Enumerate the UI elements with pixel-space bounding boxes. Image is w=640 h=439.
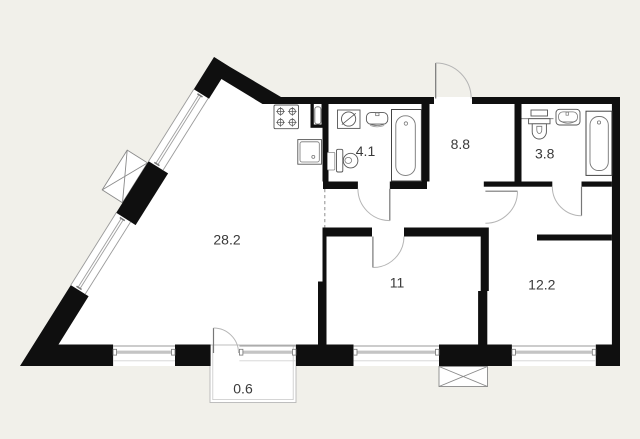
svg-text:12.2: 12.2 xyxy=(528,277,555,293)
svg-text:8.8: 8.8 xyxy=(451,136,471,152)
svg-text:28.2: 28.2 xyxy=(213,231,240,247)
svg-text:4.1: 4.1 xyxy=(356,143,376,159)
svg-text:0.6: 0.6 xyxy=(233,381,253,397)
svg-text:3.8: 3.8 xyxy=(535,145,555,161)
svg-text:11: 11 xyxy=(390,275,405,291)
